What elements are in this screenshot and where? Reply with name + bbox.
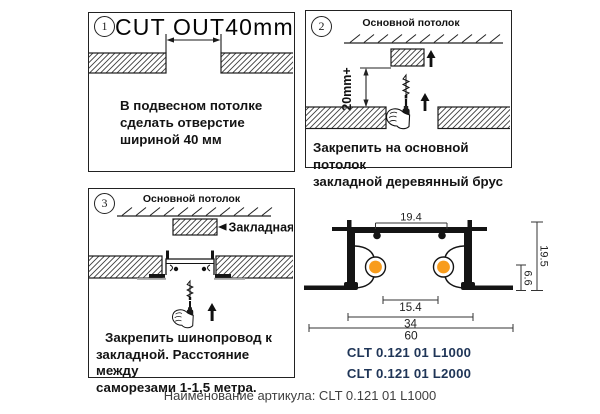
suspended-ceiling-left [89,53,166,73]
profile-body [304,220,513,290]
conductor-left [369,261,382,274]
conductor-right [437,261,450,274]
gap-dimension-label: 20mm+ [340,67,354,110]
article-footer: Наименование артикула: CLT 0.121 01 L100… [0,388,600,403]
suspended-ceiling-right [221,53,293,73]
screw-icon [187,281,193,300]
dim-arrow-down [363,100,368,108]
dim-inner-width: 15.4 [399,302,422,314]
dim-lower-height: 6.6 [522,270,534,285]
track-profile-cross-section: 19.4 15.4 34 60 19.5 6.6 [300,210,560,350]
embedded-block [173,219,217,235]
dim-arrow-up [363,68,368,76]
step2-number-badge: 2 [311,16,332,37]
step1-caption: В подвесном потолке сделать отверстие ши… [120,98,262,148]
up-arrow-icon [208,303,217,321]
step1-number: 1 [102,19,108,34]
step3-number-badge: 3 [94,193,115,214]
ceiling-hatch-ticks [350,35,500,43]
step2-caption: Закрепить на основной потолок закладной … [313,140,511,190]
suspended-ceiling-right [438,107,510,129]
dim-total-height: 19.5 [538,245,550,266]
conductor-holders [355,246,464,288]
article-l2000: CLT 0.121 01 L2000 [300,364,518,385]
step3-caption: Закрепить шинопровод к закладной. Рассто… [96,330,294,396]
panel-step2: 2 Основной потолок [305,10,512,168]
cutout-title: CUT OUT40mm [115,14,294,41]
panel-step3: 3 Основной потолок Закладная [88,188,295,378]
callout-arrow-icon [218,223,227,230]
installation-instruction-sheet: 1 CUT OUT40mm В подвесном потолке сделат… [0,0,600,414]
suspended-ceiling-left [306,107,386,129]
main-ceiling-label: Основной потолок [129,193,254,205]
wooden-beam [391,49,424,66]
step1-number-badge: 1 [94,16,115,37]
embedded-block-label: Закладная [229,221,294,235]
dim-outer-width: 60 [404,329,418,343]
hand-screwdriver-icon [173,301,194,328]
dimension-lines [309,222,543,332]
up-arrow-icon [427,50,436,67]
panel-step1: 1 CUT OUT40mm В подвесном потолке сделат… [88,12,295,172]
ceiling-hatch-ticks [122,208,272,216]
step3-number: 3 [102,196,108,211]
hand-screwdriver-icon [387,99,410,129]
dim-top-width: 19.4 [400,212,421,224]
step2-number: 2 [319,19,325,34]
up-arrow-icon [421,93,430,111]
screw-icon [403,75,409,99]
main-ceiling-label: Основной потолок [351,17,471,29]
